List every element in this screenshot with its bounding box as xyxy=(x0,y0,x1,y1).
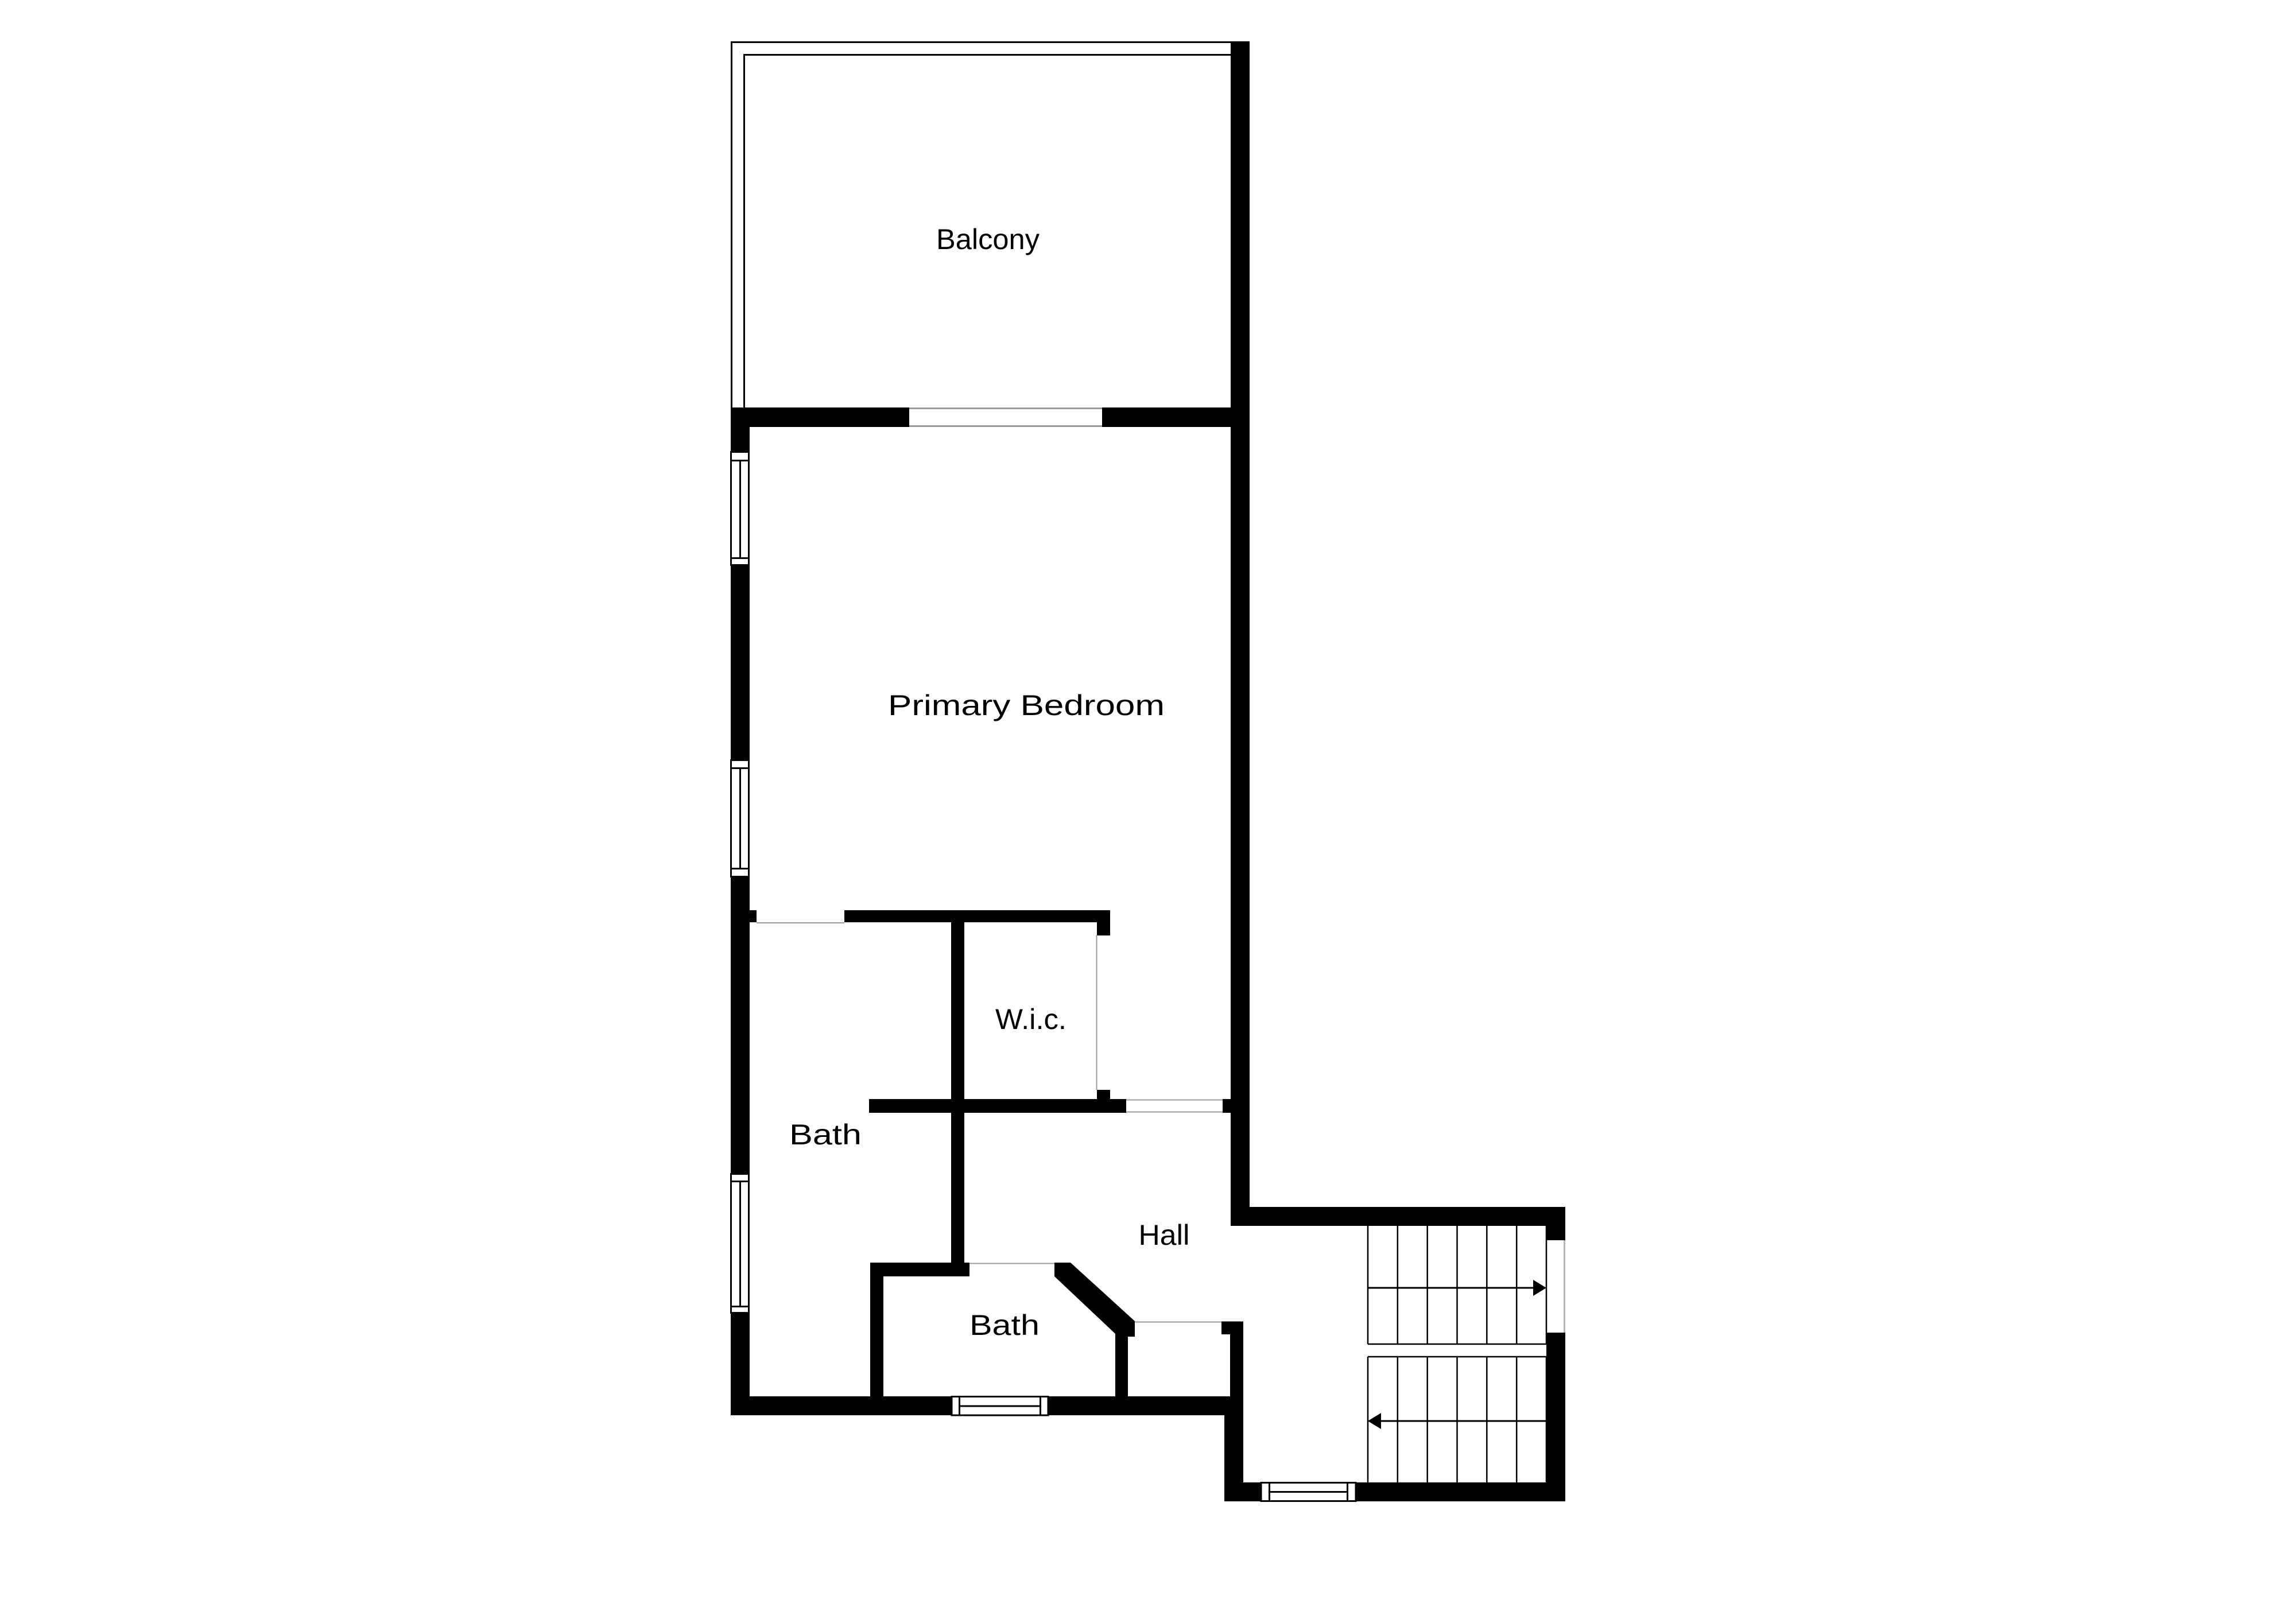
svg-text:Hall: Hall xyxy=(1139,1219,1190,1251)
svg-text:Primary Bedroom: Primary Bedroom xyxy=(888,689,1165,721)
svg-text:Bath: Bath xyxy=(969,1309,1040,1341)
svg-text:W.i.c.: W.i.c. xyxy=(995,1003,1066,1035)
svg-text:Bath: Bath xyxy=(789,1119,862,1151)
svg-text:Balcony: Balcony xyxy=(936,223,1040,255)
